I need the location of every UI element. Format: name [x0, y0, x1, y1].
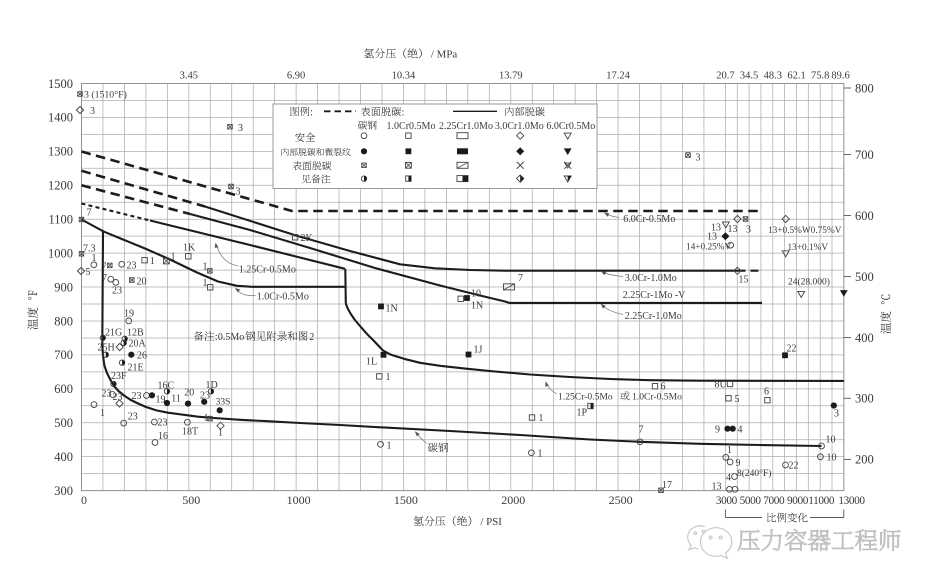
- svg-text:3: 3: [236, 187, 241, 198]
- svg-text:1K: 1K: [183, 243, 196, 254]
- svg-text:3 (1510°F): 3 (1510°F): [84, 90, 127, 101]
- svg-text:13: 13: [707, 232, 717, 243]
- svg-text:6.90: 6.90: [287, 71, 305, 82]
- svg-text:7: 7: [102, 273, 107, 284]
- svg-text:3000: 3000: [716, 495, 738, 507]
- svg-text:12B: 12B: [127, 328, 144, 339]
- svg-text:1.0Cr0.5Mo: 1.0Cr0.5Mo: [387, 121, 436, 132]
- svg-text:1L: 1L: [366, 357, 377, 368]
- svg-text:700: 700: [855, 148, 874, 162]
- svg-text:23: 23: [200, 391, 210, 402]
- svg-text:8(240°F): 8(240°F): [737, 468, 771, 479]
- svg-text:1N: 1N: [386, 304, 398, 315]
- svg-text:23: 23: [132, 391, 142, 402]
- svg-text:13+0.1%V: 13+0.1%V: [788, 243, 829, 253]
- svg-text:7: 7: [518, 273, 523, 284]
- svg-text:4: 4: [726, 473, 731, 484]
- svg-text:23: 23: [113, 392, 123, 403]
- svg-text:62.1: 62.1: [787, 71, 805, 82]
- svg-text:20.7: 20.7: [716, 71, 734, 82]
- svg-text:1: 1: [386, 372, 391, 383]
- svg-text:1000: 1000: [287, 493, 311, 507]
- svg-text:14+0.25%V: 14+0.25%V: [686, 243, 732, 253]
- svg-text:1: 1: [539, 413, 544, 424]
- svg-text:1D: 1D: [206, 380, 218, 391]
- svg-text:8U: 8U: [715, 380, 728, 391]
- svg-text:400: 400: [855, 331, 874, 345]
- svg-text:1300: 1300: [48, 145, 73, 159]
- svg-text:500: 500: [855, 270, 874, 284]
- svg-text:3: 3: [834, 409, 839, 420]
- svg-text:11: 11: [171, 394, 181, 405]
- svg-text:3: 3: [696, 153, 701, 164]
- svg-text:15: 15: [739, 275, 749, 286]
- svg-text:24(28.000): 24(28.000): [788, 277, 830, 288]
- svg-text:18T: 18T: [182, 427, 198, 438]
- svg-text:900: 900: [54, 280, 73, 294]
- svg-text:1500: 1500: [48, 77, 73, 91]
- svg-text:10: 10: [826, 435, 836, 446]
- svg-text:21E: 21E: [128, 363, 144, 374]
- svg-text:7: 7: [639, 425, 644, 436]
- svg-text:300: 300: [54, 484, 73, 498]
- svg-text:17.24: 17.24: [606, 71, 630, 82]
- svg-text:3: 3: [238, 123, 243, 134]
- svg-text:0: 0: [81, 493, 87, 507]
- svg-text:13: 13: [712, 482, 722, 493]
- svg-text:9: 9: [715, 425, 720, 436]
- svg-text:700: 700: [54, 348, 73, 362]
- svg-text:400: 400: [54, 450, 73, 464]
- svg-text:2500: 2500: [609, 493, 633, 507]
- svg-text:1.25Cr-0.5Mo: 1.25Cr-0.5Mo: [239, 265, 296, 276]
- svg-text:600: 600: [54, 382, 73, 396]
- svg-text:11000: 11000: [808, 495, 835, 507]
- svg-text:6.0Cr0.5Mo: 6.0Cr0.5Mo: [546, 121, 595, 132]
- svg-text:1: 1: [387, 441, 392, 452]
- svg-text:1: 1: [727, 445, 732, 456]
- svg-text:3.45: 3.45: [180, 71, 198, 82]
- svg-text:89.6: 89.6: [831, 71, 849, 82]
- svg-text:26: 26: [137, 351, 147, 362]
- svg-text:48.3: 48.3: [764, 71, 782, 82]
- svg-text:6: 6: [661, 382, 666, 393]
- svg-text:1200: 1200: [48, 179, 73, 193]
- svg-text:20: 20: [184, 388, 194, 399]
- svg-text:17: 17: [662, 480, 672, 491]
- svg-text:23: 23: [128, 412, 138, 423]
- svg-text:1100: 1100: [48, 213, 73, 227]
- svg-text:6.0Cr-0.5Mo: 6.0Cr-0.5Mo: [623, 214, 675, 225]
- svg-text:16C: 16C: [158, 381, 175, 392]
- svg-text:20: 20: [137, 277, 147, 288]
- svg-text:10: 10: [471, 289, 481, 300]
- svg-text:34.5: 34.5: [740, 71, 758, 82]
- svg-text:33S: 33S: [216, 397, 231, 407]
- svg-text:23F: 23F: [111, 371, 127, 382]
- svg-text:1: 1: [218, 428, 223, 439]
- svg-text:16: 16: [158, 431, 168, 442]
- svg-text:23: 23: [158, 418, 168, 429]
- svg-text:5: 5: [735, 394, 740, 405]
- svg-text:1500: 1500: [394, 493, 418, 507]
- svg-text:22: 22: [787, 344, 797, 355]
- svg-text:1: 1: [203, 262, 208, 273]
- svg-text:5: 5: [86, 267, 91, 278]
- svg-text:75.8: 75.8: [811, 71, 829, 82]
- svg-text:/ PSI: / PSI: [480, 516, 502, 528]
- svg-text:1: 1: [538, 449, 543, 460]
- svg-text:1N: 1N: [471, 301, 483, 312]
- svg-text:19: 19: [156, 395, 166, 406]
- svg-text:1: 1: [203, 278, 208, 289]
- svg-text:19: 19: [124, 309, 134, 320]
- svg-text:1J: 1J: [474, 345, 483, 356]
- svg-text:20A: 20A: [129, 339, 147, 350]
- svg-text:1: 1: [150, 256, 155, 267]
- svg-text:1.0Cr-0.5Mo: 1.0Cr-0.5Mo: [257, 291, 309, 302]
- svg-text:1P: 1P: [577, 408, 588, 419]
- svg-text:2.25Cr1.0Mo: 2.25Cr1.0Mo: [439, 121, 493, 132]
- svg-text:800: 800: [54, 314, 73, 328]
- svg-text:7000: 7000: [763, 495, 785, 507]
- svg-text:500: 500: [54, 416, 73, 430]
- svg-text:1: 1: [100, 408, 105, 419]
- svg-text:1: 1: [204, 413, 209, 424]
- svg-text:9: 9: [736, 458, 741, 469]
- svg-text:3.0Cr1.0Mo: 3.0Cr1.0Mo: [495, 121, 544, 132]
- svg-text:23: 23: [112, 286, 122, 297]
- svg-text:0.5Mo: 0.5Mo: [218, 332, 244, 343]
- svg-text:1: 1: [92, 253, 97, 264]
- svg-text:2000: 2000: [501, 493, 525, 507]
- svg-text:200: 200: [855, 453, 874, 467]
- svg-text:3.0Cr-1.0Mo: 3.0Cr-1.0Mo: [625, 273, 677, 284]
- svg-text:13000: 13000: [838, 495, 865, 507]
- svg-text:9000: 9000: [787, 495, 809, 507]
- svg-text:3: 3: [90, 106, 95, 117]
- svg-text:2: 2: [309, 332, 314, 343]
- svg-text:13+0.5%W0.75%V: 13+0.5%W0.75%V: [768, 226, 842, 236]
- svg-text:500: 500: [182, 493, 200, 507]
- svg-text:2K: 2K: [301, 233, 314, 244]
- svg-text:1.0Cr-0.5Mo: 1.0Cr-0.5Mo: [632, 392, 682, 403]
- svg-text:5000: 5000: [740, 495, 762, 507]
- svg-text:13.79: 13.79: [499, 71, 523, 82]
- svg-text:1400: 1400: [48, 111, 73, 125]
- svg-text:13: 13: [728, 224, 738, 235]
- svg-text:22: 22: [789, 461, 799, 472]
- svg-text:/ MPa: / MPa: [431, 49, 457, 61]
- svg-text:3: 3: [746, 225, 751, 236]
- svg-text:23: 23: [102, 389, 112, 400]
- svg-text:21G: 21G: [105, 328, 122, 339]
- svg-text:2.25Cr-1Mo -V: 2.25Cr-1Mo -V: [623, 290, 686, 301]
- svg-text:1: 1: [171, 252, 176, 263]
- svg-text:600: 600: [855, 209, 874, 223]
- svg-text:23: 23: [127, 261, 137, 272]
- svg-text:7: 7: [102, 262, 107, 273]
- svg-text:10: 10: [827, 453, 837, 464]
- svg-text:1.25Cr-0.5Mo: 1.25Cr-0.5Mo: [558, 392, 613, 403]
- svg-text:300: 300: [855, 392, 874, 406]
- svg-text:800: 800: [855, 81, 874, 95]
- svg-text:2.25Cr-1.0Mo: 2.25Cr-1.0Mo: [625, 311, 682, 322]
- svg-text:7: 7: [87, 208, 92, 219]
- svg-text:6: 6: [764, 387, 769, 398]
- svg-text:10.34: 10.34: [392, 71, 416, 82]
- svg-text:1000: 1000: [48, 246, 73, 260]
- svg-text:4: 4: [738, 425, 743, 436]
